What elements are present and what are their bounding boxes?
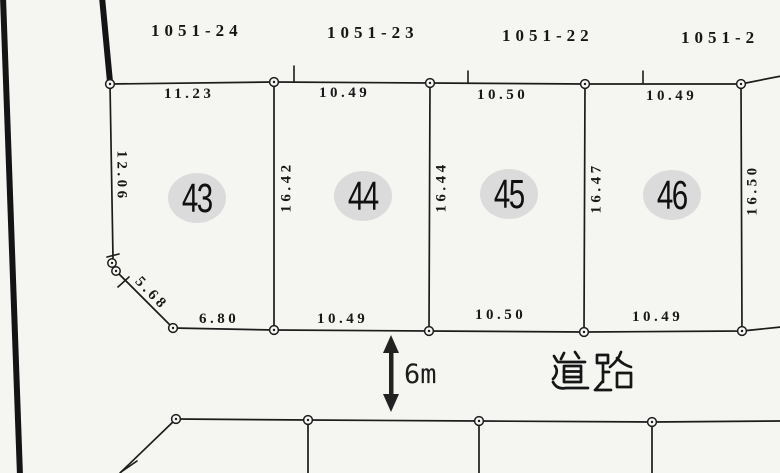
edge-length-label: 10.50 [477,87,528,104]
plot-number-badge: 45 [480,169,538,219]
plot-number: 45 [494,174,524,215]
edge-length-label: 16.44 [434,161,451,212]
edge-length-label: 10.49 [319,85,370,102]
edge-length-label: 12.06 [113,150,130,201]
lot-number-label: 1051-24 [151,21,243,41]
divider-45-46 [584,84,585,332]
thick-boundary-top-stub [102,0,110,82]
survey-marker [475,417,484,426]
cadastral-map: 1051-24 1051-23 1051-22 1051-2 11.23 10.… [0,0,780,473]
edge-length-label: 10.49 [632,309,683,326]
road-width-label: 6m [404,359,437,390]
edge-length-label: 16.42 [279,161,296,212]
survey-drawing [0,0,780,473]
plot-number: 44 [348,176,378,217]
edge-length-label: 6.80 [199,311,239,328]
survey-marker [426,79,435,88]
upper-block-bottom-boundary [173,327,780,332]
survey-marker [169,324,178,333]
survey-marker [304,416,313,425]
survey-marker [425,327,434,336]
survey-marker [737,80,746,89]
edge-length-label: 16.50 [745,164,762,215]
lot-number-label: 1051-2 [681,28,759,48]
road-width-arrow [383,335,399,412]
plot-number-badge: 43 [168,173,226,223]
edge-length-label: 10.49 [317,311,368,328]
plot-number: 43 [182,178,212,219]
survey-marker [648,418,657,427]
edge-length-label: 10.50 [475,307,526,324]
upper-block-top-boundary [110,76,780,84]
survey-marker [270,326,279,335]
survey-marker [270,78,279,87]
survey-marker [108,259,116,267]
lower-block-diagonal [120,419,176,473]
survey-marker [172,415,181,424]
survey-marker [112,267,120,275]
tick-marks [107,66,643,472]
lot-number-label: 1051-22 [502,26,594,46]
edge-length-label: 16.47 [589,162,606,213]
survey-marker [106,80,115,89]
edge-length-label: 10.49 [646,88,697,105]
plot-number-badge: 44 [334,171,392,221]
plot-number-badge: 46 [643,170,701,220]
thick-boundary-left [3,0,20,473]
lot-number-label: 1051-23 [327,23,419,43]
survey-marker [581,80,590,89]
plot46-right-boundary [741,84,742,331]
divider-44-45 [429,83,430,331]
road-name-label [551,350,635,394]
survey-marker [580,328,589,337]
edge-length-label: 11.23 [164,86,214,103]
plot-number: 46 [657,175,687,216]
survey-marker [738,327,747,336]
